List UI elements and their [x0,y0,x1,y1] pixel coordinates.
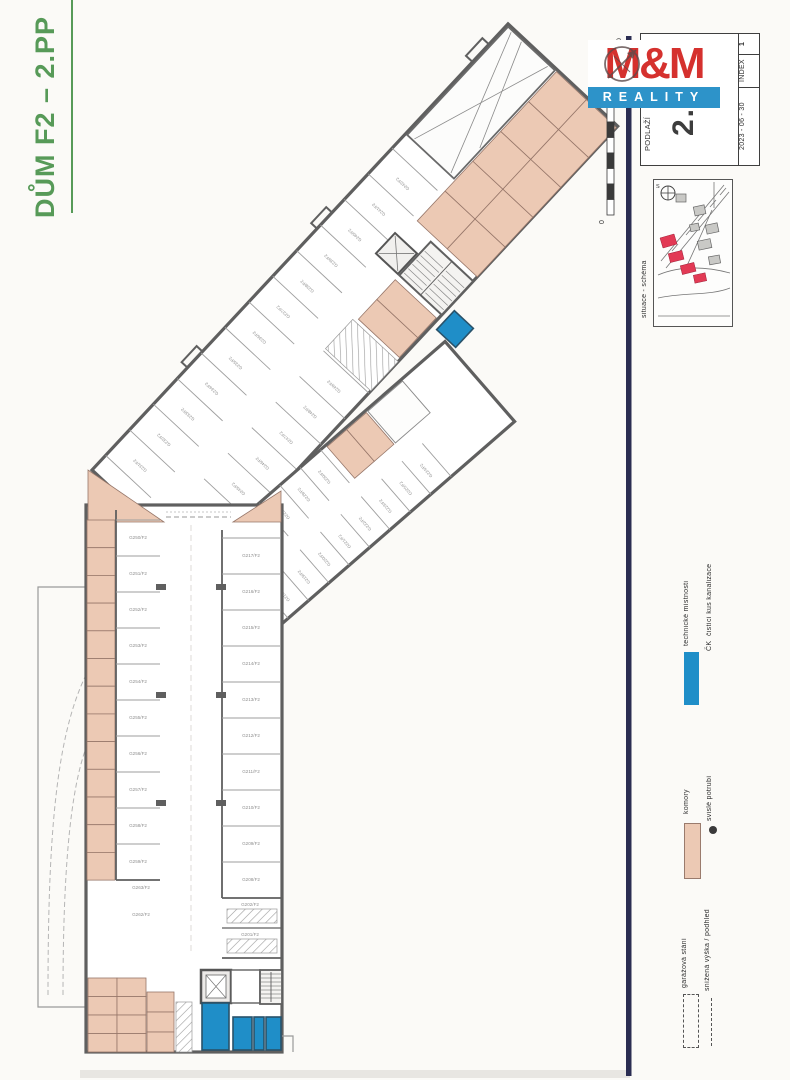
room-label: G201/F2 [241,932,259,937]
svg-text:G212/F2: G212/F2 [242,733,260,738]
situation-map: S [653,179,733,327]
map-caption: situace - schéma [641,252,652,326]
legend-label-garage: garážová stání [681,934,697,992]
svg-text:G210/F2: G210/F2 [242,805,260,810]
legend-label-ck: čistící kus kanalizace [706,574,720,636]
technical-room [233,1017,252,1050]
date: 2023 - 06 - 30 [739,88,759,165]
svg-text:G213/F2: G213/F2 [242,697,260,702]
svg-text:G209/F2: G209/F2 [242,841,260,846]
svg-text:G251/F2: G251/F2 [129,571,147,576]
divider-line [626,36,632,1076]
index-value: 1 [739,34,759,54]
title-rule [71,0,73,213]
legend-swatch-komory [684,823,701,879]
technical-room [266,1017,281,1050]
bottom-mid-room [231,970,260,1003]
svg-text:G256/F2: G256/F2 [129,751,147,756]
legend-dot-icon [709,826,717,834]
elevator-bottom [201,970,231,1003]
komory-strip [87,520,115,880]
legend-label-lowered: snížená výška / podhled [704,904,718,996]
svg-text:G254/F2: G254/F2 [129,679,147,684]
lowered-ceiling-bottom [176,1002,192,1052]
room-label: G263/F2 [132,885,150,890]
svg-text:S: S [656,184,660,190]
title-block-strip: 1 INDEX 2023 - 06 - 30 [738,34,759,165]
scan-fold-strip [80,1070,630,1078]
svg-text:G253/F2: G253/F2 [129,643,147,648]
svg-text:G216/F2: G216/F2 [242,589,260,594]
svg-text:G214/F2: G214/F2 [242,661,260,666]
scale-zero: 0 [599,220,606,224]
svg-text:G208/F2: G208/F2 [242,877,260,882]
svg-text:G255/F2: G255/F2 [129,715,147,720]
technical-room-large [202,1003,229,1050]
legend-abbr-ck: ČK [706,638,720,654]
stairs-bottom [260,970,282,1004]
svg-text:G258/F2: G258/F2 [129,823,147,828]
svg-text:G259/F2: G259/F2 [129,859,147,864]
room-label: G202/F2 [241,902,259,907]
legend-label-komory: komory [683,784,699,820]
floor-label: PODLAŽÍ [643,106,657,162]
legend-swatch-technical [684,652,699,705]
legend-label-technical: technické místnosti [683,576,699,650]
map-north-icon: S [656,184,675,200]
svg-text:G215/F2: G215/F2 [242,625,260,630]
svg-text:G252/F2: G252/F2 [129,607,147,612]
north-arrow-icon [589,28,661,100]
room-label: G262/F2 [132,912,150,917]
komory-bottom-a [88,978,146,1052]
legend-swatch-garage [683,994,699,1048]
komory-bottom-b [147,992,174,1052]
svg-text:G217/F2: G217/F2 [242,553,260,558]
svg-text:G257/F2: G257/F2 [129,787,147,792]
legend-label-pipe: svislé potrubí [706,772,720,824]
svg-text:G250/F2: G250/F2 [129,535,147,540]
legend-dashed-line-icon [711,998,712,1046]
page-title: DŮM F2 – 2.PP [30,22,70,218]
index-label: INDEX [739,55,759,87]
page: { "colors": { "green": "#579a58", "navy"… [0,0,790,1080]
svg-text:G211/F2: G211/F2 [242,769,260,774]
vertical-wing: G250/F2G251/F2G252/F2G253/F2G254/F2G255/… [86,470,293,1052]
technical-room [254,1017,264,1050]
